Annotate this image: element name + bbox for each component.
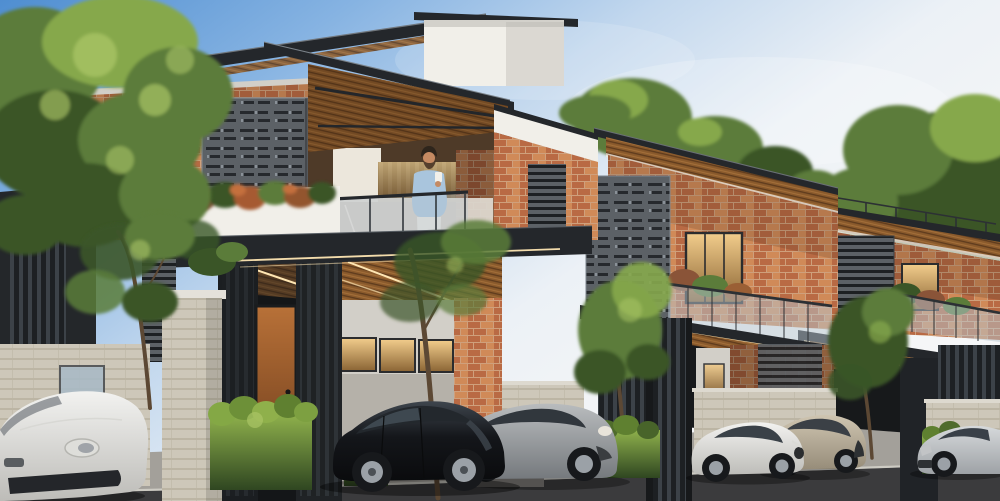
tower-face-shade <box>506 22 564 86</box>
stone-wall-cap <box>692 388 838 392</box>
creeper-on-slab <box>216 242 248 262</box>
slat-fence <box>938 345 1000 405</box>
back-window-warm <box>704 364 724 392</box>
tower-cap-shadow <box>424 20 564 27</box>
headlight <box>598 426 612 436</box>
white-sports-car <box>0 391 148 501</box>
headlight-inner <box>78 443 94 453</box>
scene-canvas <box>0 0 1000 501</box>
door-handle <box>285 389 290 394</box>
interior-lit-wall <box>333 148 381 202</box>
front-grille <box>794 447 804 459</box>
front-intake <box>918 460 932 468</box>
hedge-entry <box>208 394 318 490</box>
stone-wall-left-cap <box>496 381 586 385</box>
side-vent <box>4 458 24 467</box>
stone-wall-cap <box>924 399 1000 403</box>
person-hand <box>435 181 441 187</box>
clerestory-windows <box>341 338 453 372</box>
person-cup <box>435 172 442 182</box>
architectural-render-scene <box>0 0 1000 501</box>
